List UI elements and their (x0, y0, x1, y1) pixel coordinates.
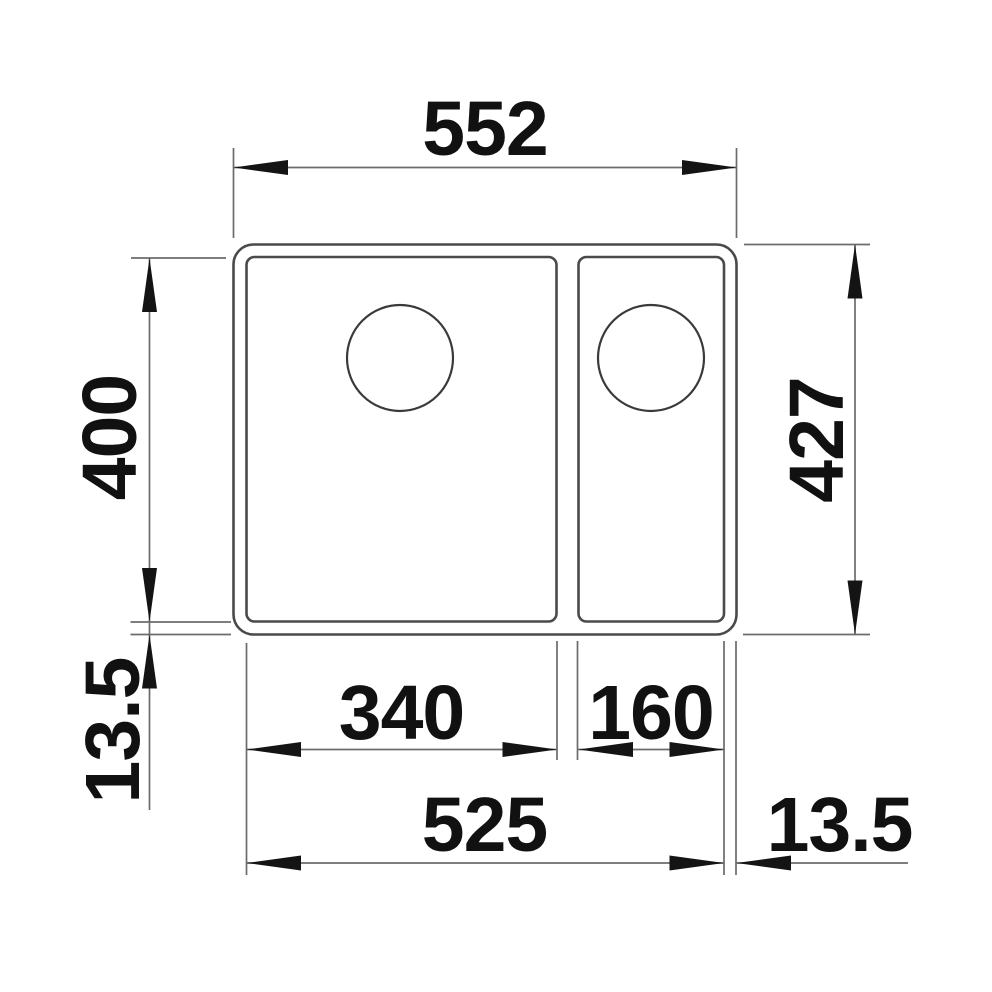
svg-text:340: 340 (339, 670, 464, 756)
svg-text:160: 160 (588, 670, 713, 756)
svg-text:13.5: 13.5 (70, 658, 156, 804)
svg-text:427: 427 (774, 377, 860, 502)
svg-text:400: 400 (67, 375, 153, 500)
svg-text:13.5: 13.5 (767, 782, 913, 868)
svg-text:552: 552 (422, 86, 547, 172)
svg-text:525: 525 (422, 782, 547, 868)
